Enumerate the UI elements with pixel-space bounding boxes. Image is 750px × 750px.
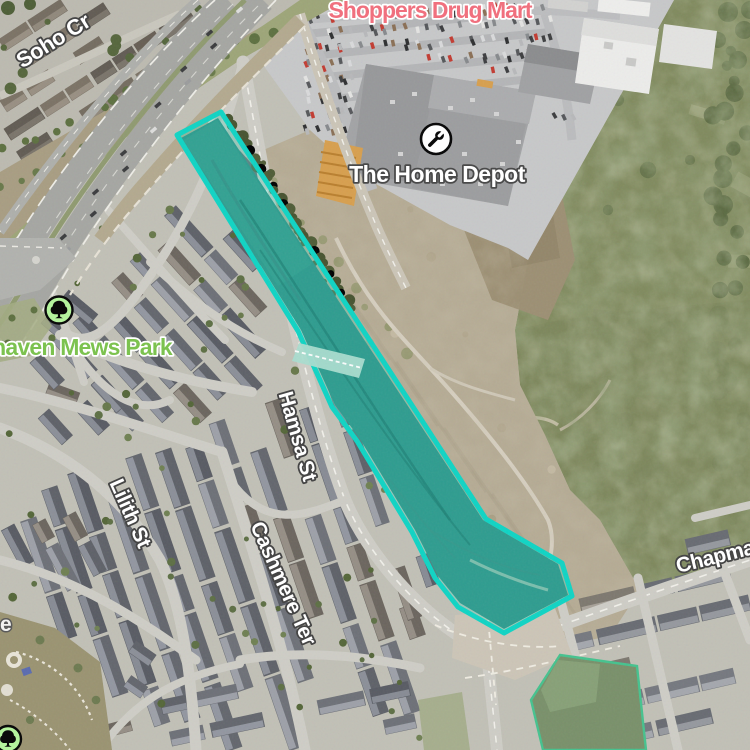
svg-text:The Home Depot: The Home Depot	[349, 161, 526, 187]
svg-text:haven Mews Park: haven Mews Park	[0, 334, 173, 360]
svg-text:e: e	[0, 613, 12, 636]
svg-text:Shoppers Drug Mart: Shoppers Drug Mart	[328, 0, 532, 23]
